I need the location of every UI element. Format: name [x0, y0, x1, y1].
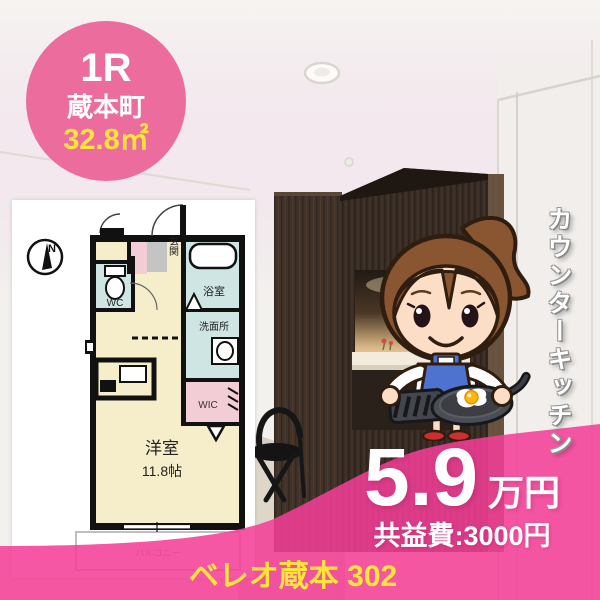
photo-caption: カウンターキッチン — [540, 206, 576, 466]
bathtub-icon — [190, 244, 236, 268]
toilet-icon — [105, 266, 125, 299]
main-room-size-label: 11.8帖 — [142, 463, 182, 479]
compass-label: N — [48, 243, 56, 255]
badge-layout-type: 1R — [80, 46, 131, 91]
mascot-cook — [381, 218, 530, 441]
rent-amount: 5.9 — [364, 437, 478, 519]
floorplan-panel: バルコニー — [12, 200, 255, 578]
sink-icon — [212, 338, 238, 364]
compass-icon: N — [28, 240, 62, 274]
floorplan-drawing: バルコニー — [12, 200, 255, 578]
toilet-label: WC — [107, 298, 124, 309]
closet-label: WIC — [198, 400, 217, 411]
mascot-character — [362, 206, 532, 441]
washroom-label: 洗面所 — [199, 321, 229, 333]
badge-area: 32.8㎡ — [63, 124, 148, 156]
rent-unit: 万円 — [488, 464, 560, 516]
property-name: ベレオ蔵本 302 — [0, 551, 586, 595]
ceiling-sensor — [345, 158, 353, 166]
entrance-label: 玄関 — [167, 235, 179, 257]
bath-label: 浴室 — [203, 284, 225, 298]
main-room-label: 洋室 — [145, 439, 179, 458]
badge-district: 蔵本町 — [67, 93, 145, 122]
ceiling-light-icon — [305, 63, 339, 83]
listing-card[interactable]: バルコニー — [0, 0, 600, 600]
property-badge: 1R 蔵本町 32.8㎡ — [26, 21, 186, 181]
common-fee: 共益費:3000円 — [336, 514, 588, 553]
price-block: 5.9 万円 — [336, 437, 588, 519]
